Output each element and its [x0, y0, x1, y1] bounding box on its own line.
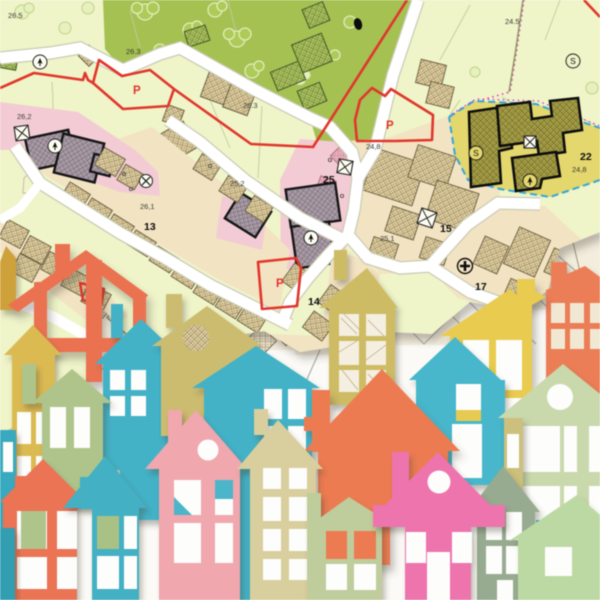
svg-text:26.3: 26.3	[243, 101, 258, 110]
svg-text:25.2: 25.2	[230, 179, 245, 188]
svg-text:25: 25	[323, 174, 335, 186]
svg-text:P: P	[133, 85, 141, 97]
svg-text:13: 13	[144, 221, 156, 233]
svg-text:S: S	[473, 148, 479, 158]
svg-text:26,2: 26,2	[17, 112, 32, 121]
svg-text:17: 17	[475, 281, 487, 293]
svg-text:P: P	[276, 278, 284, 290]
svg-text:24.5: 24.5	[505, 17, 520, 26]
svg-text:15: 15	[440, 223, 452, 235]
svg-text:P: P	[386, 120, 394, 132]
svg-text:26.3: 26.3	[126, 47, 141, 56]
svg-text:22: 22	[580, 151, 592, 163]
svg-text:25.1: 25.1	[380, 234, 395, 243]
svg-text:26,1: 26,1	[140, 202, 155, 211]
svg-text:S: S	[570, 56, 576, 66]
svg-text:14: 14	[308, 296, 320, 308]
svg-text:24,8: 24,8	[572, 165, 587, 174]
svg-text:26.5: 26.5	[8, 11, 23, 20]
svg-text:24,8: 24,8	[366, 142, 381, 151]
